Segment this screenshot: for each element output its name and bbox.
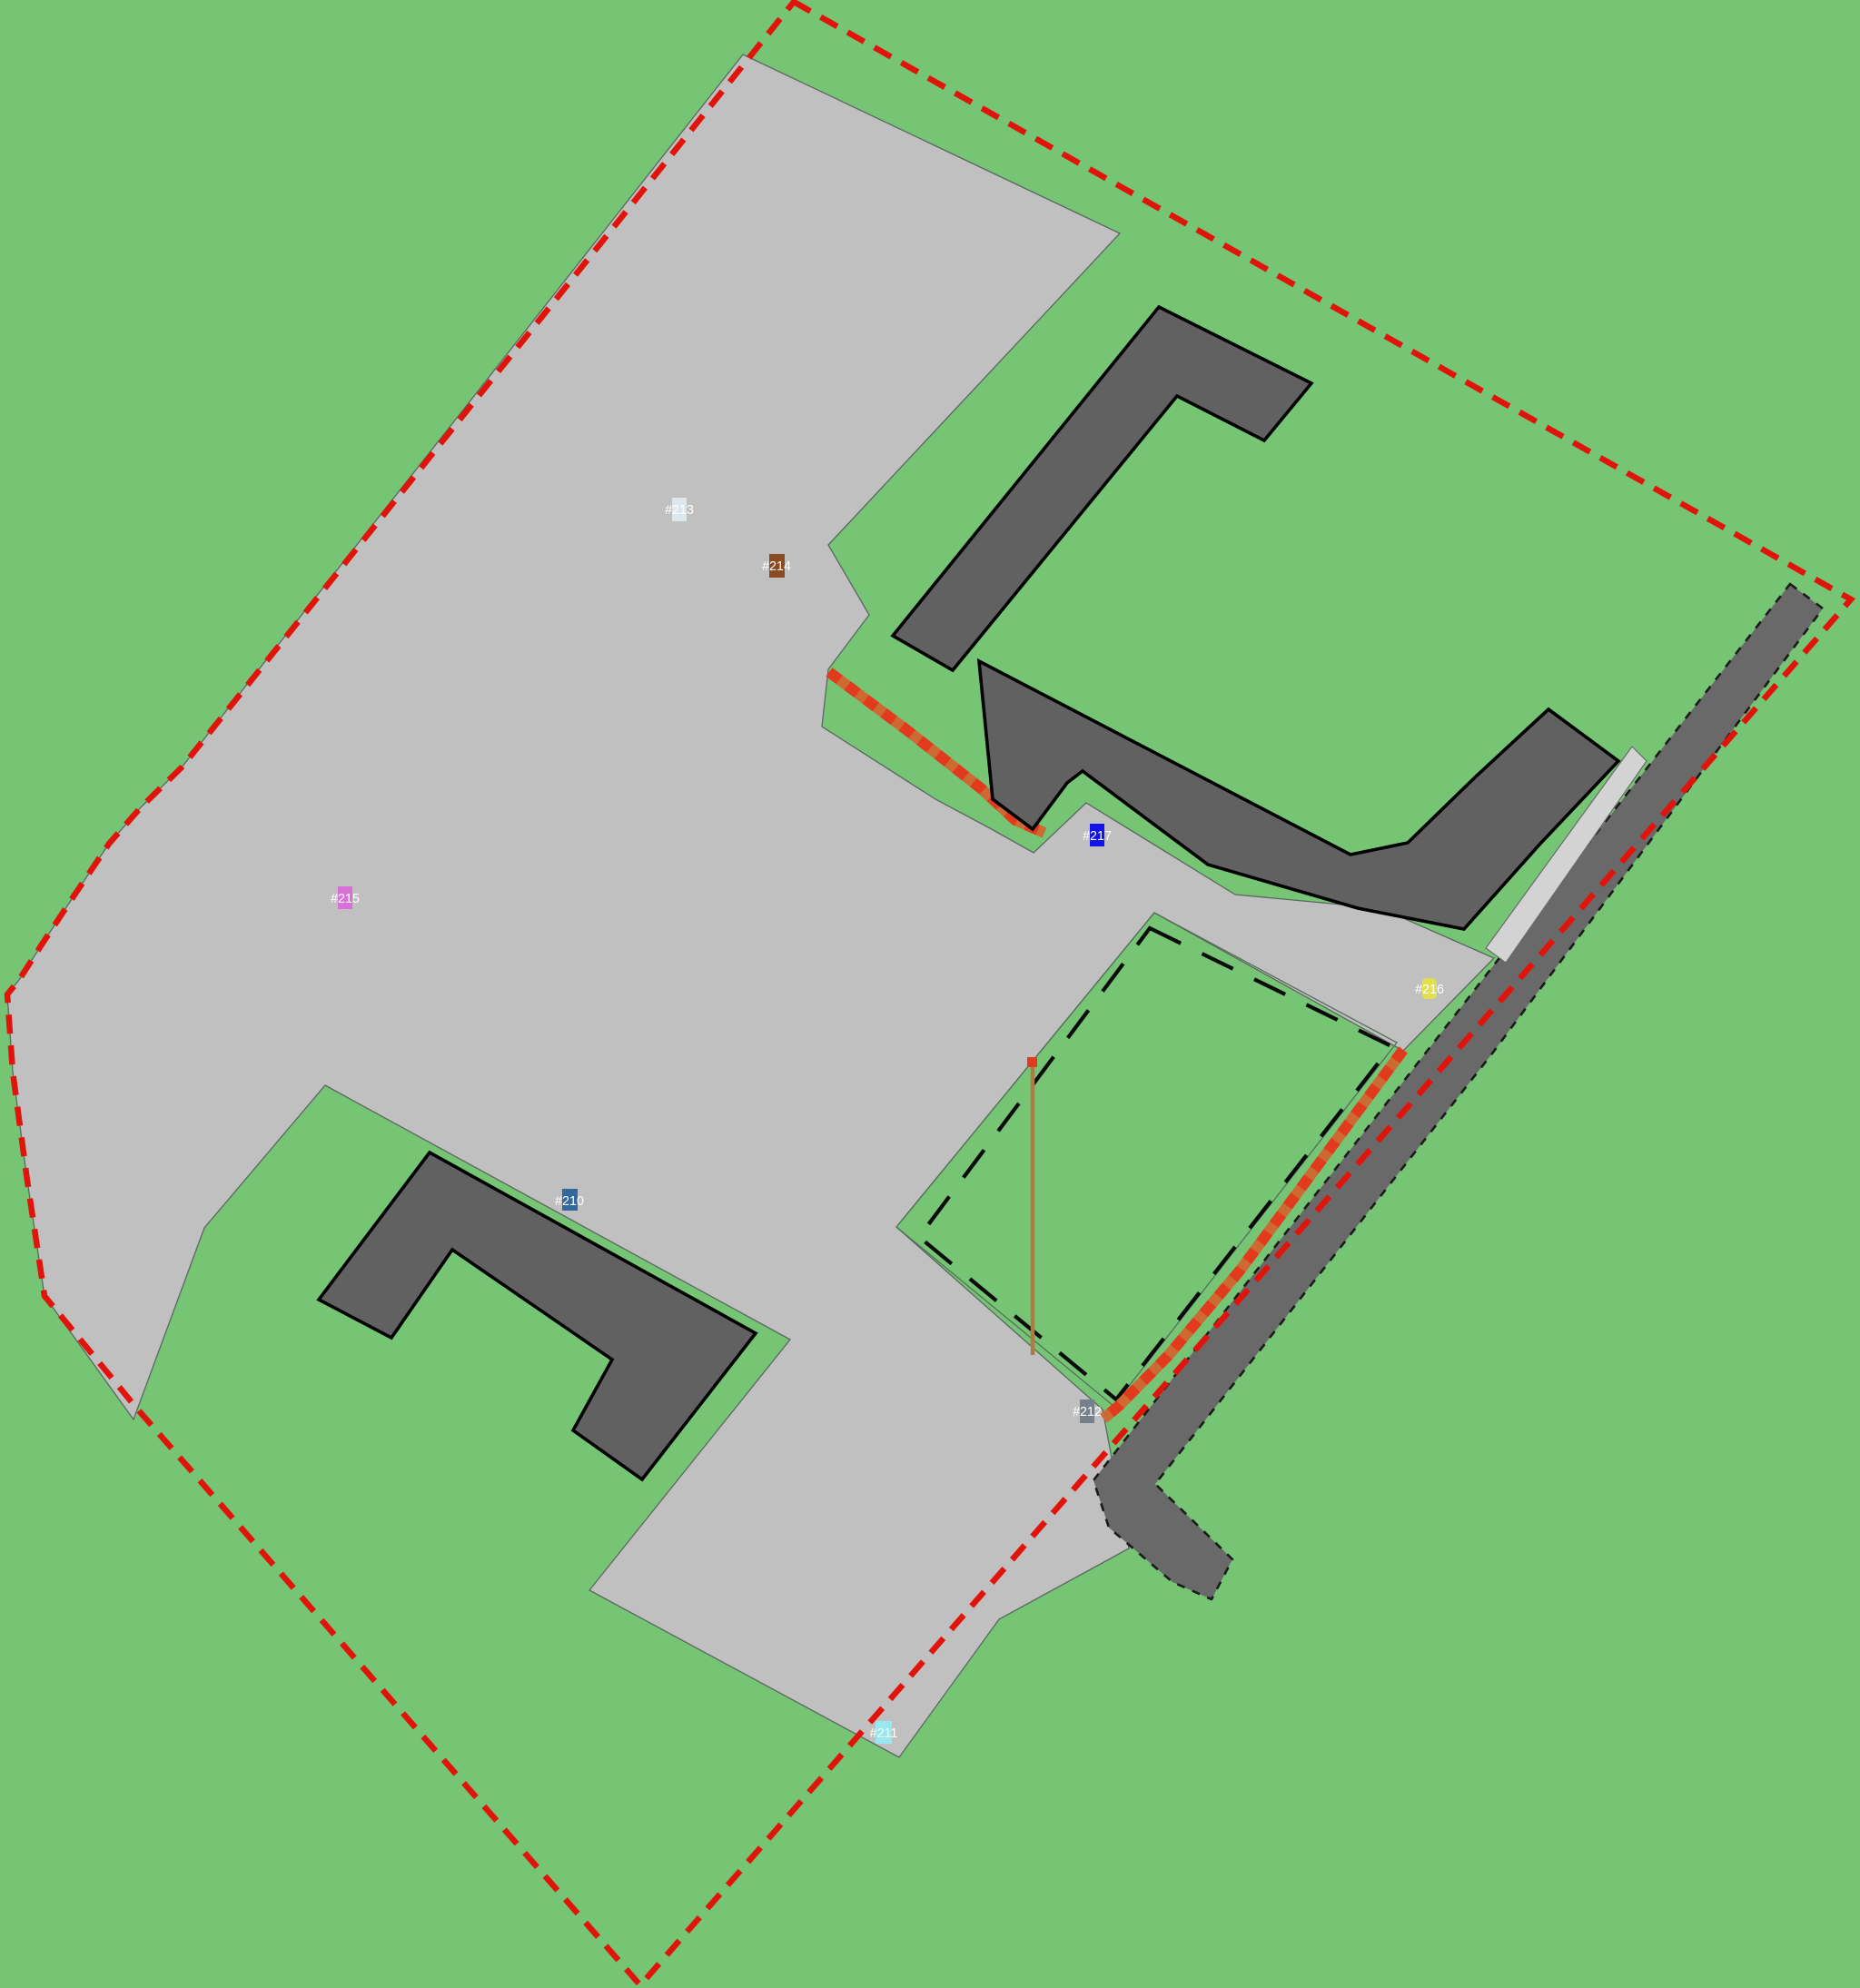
svg-text:#213: #213 <box>665 503 694 518</box>
svg-text:#217: #217 <box>1083 829 1112 844</box>
svg-text:#212: #212 <box>1073 1405 1102 1419</box>
svg-text:#210: #210 <box>555 1194 584 1209</box>
svg-text:#215: #215 <box>331 892 360 906</box>
svg-text:#214: #214 <box>762 559 791 574</box>
svg-text:#216: #216 <box>1415 983 1444 997</box>
svg-text:#211: #211 <box>870 1726 898 1741</box>
